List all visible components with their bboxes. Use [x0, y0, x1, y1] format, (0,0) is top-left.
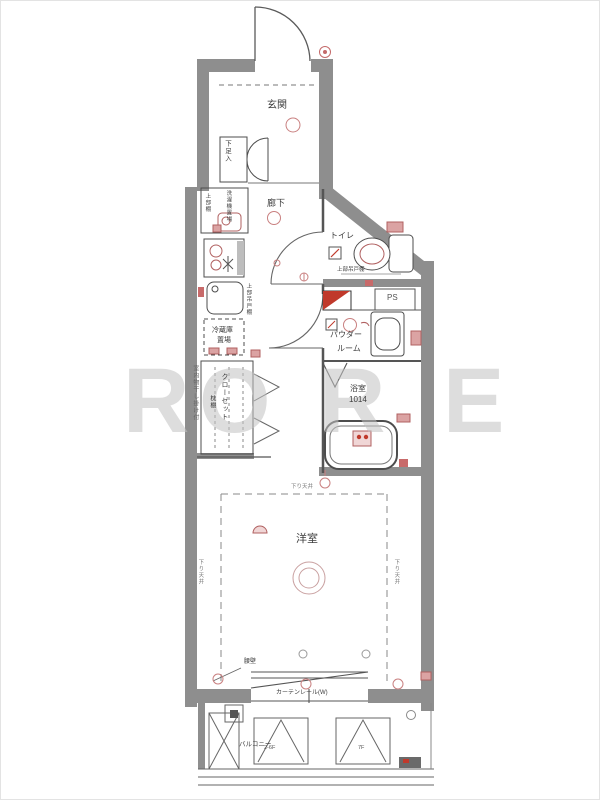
- ps-row: [323, 289, 421, 310]
- bathroom: [323, 363, 410, 469]
- ceiling-light-symbol: [293, 562, 325, 594]
- toilet-tank-icon: [387, 222, 403, 232]
- wall-bottom-left: [185, 689, 251, 703]
- towel-bar-icon: [411, 331, 421, 345]
- bathroom-label: 浴室: [350, 384, 366, 393]
- floorplan-drawing: [1, 1, 600, 800]
- folding-door: [323, 363, 347, 387]
- hallway-label: 廊下: [267, 198, 285, 208]
- faucet-icon: [397, 414, 410, 422]
- room-lowered-ceiling: [221, 494, 388, 683]
- wall-entrance-left: [197, 59, 209, 191]
- balcony-panel-a-label: 2-6F: [264, 745, 275, 751]
- room-symbols: [253, 470, 370, 658]
- lowered-ceiling-label-left: 下り天井: [197, 559, 203, 595]
- floorplan-canvas: R O R E 玄関 下足入 廊下 トイレ 上部吊戸棚 PS パウダー ルーム …: [0, 0, 600, 800]
- balcony: [198, 703, 434, 785]
- washer-shelf-label: 上部棚: [204, 193, 210, 219]
- outlet-icon: [365, 280, 373, 286]
- lowered-ceiling-label-right: 下り天井: [393, 559, 399, 595]
- faucet-icon: [361, 322, 369, 326]
- curtain-rail-label: カーテンレール(W): [276, 690, 328, 697]
- wall-entrance-right: [319, 59, 333, 191]
- fridge-label-2: 置場: [217, 337, 231, 345]
- window-symbols: [213, 672, 431, 689]
- room-label: 洋室: [296, 533, 318, 546]
- wall-bottom-right: [368, 689, 434, 703]
- waist-wall-label: 腰壁: [244, 659, 256, 666]
- hallway-doors: [269, 232, 323, 348]
- powder-room-label-1: パウダー: [330, 330, 362, 339]
- tap-icon: [198, 287, 204, 297]
- wall-right-main: [421, 261, 434, 711]
- entry-door: [255, 7, 310, 61]
- washer-space-label: 洗濯機置場: [225, 190, 231, 232]
- louver-panel-b: [336, 718, 390, 764]
- doorbell-icon: [320, 47, 331, 58]
- light-symbol: [286, 118, 300, 132]
- stove: [204, 239, 244, 277]
- hallway-outlet-icons: [251, 260, 308, 357]
- entrance-label: 玄関: [267, 100, 287, 112]
- hallway-light-symbol: [268, 212, 281, 225]
- ps-label: PS: [387, 293, 398, 302]
- closet-door: [254, 418, 279, 444]
- drain-icon: [407, 711, 416, 720]
- outlet-icon: [399, 459, 408, 467]
- vanity: [371, 312, 404, 356]
- kitchen-sink: [198, 282, 243, 314]
- kitchen-upper-cabinet-label: 上部吊戸棚: [245, 283, 251, 335]
- fridge-label-1: 冷蔵庫: [212, 327, 233, 335]
- shoe-box-label: 下足入: [223, 140, 230, 184]
- toilet-upper-cabinet-label: 上部吊戸棚: [337, 267, 365, 273]
- closet-label: クローゼット: [220, 373, 228, 447]
- meter-box: [399, 757, 421, 768]
- bathroom-size-label: 1014: [349, 395, 367, 404]
- closet-shelf-label: 枕棚: [208, 395, 215, 415]
- fire-alarm-icon: [253, 526, 267, 533]
- closet-door: [254, 374, 279, 401]
- toilet-label: トイレ: [330, 231, 354, 240]
- powder-room-label-2: ルーム: [337, 344, 361, 353]
- indoor-laundry-note: 室内物干し掛け付: [191, 365, 198, 461]
- bath-controls-icon: [353, 431, 371, 446]
- wall-balcony-left: [198, 703, 205, 769]
- lowered-ceiling-label-top: 下り天井: [291, 484, 313, 490]
- balcony-panel-b-label: 7F: [358, 745, 364, 751]
- wall-toilet-bottom: [323, 279, 426, 287]
